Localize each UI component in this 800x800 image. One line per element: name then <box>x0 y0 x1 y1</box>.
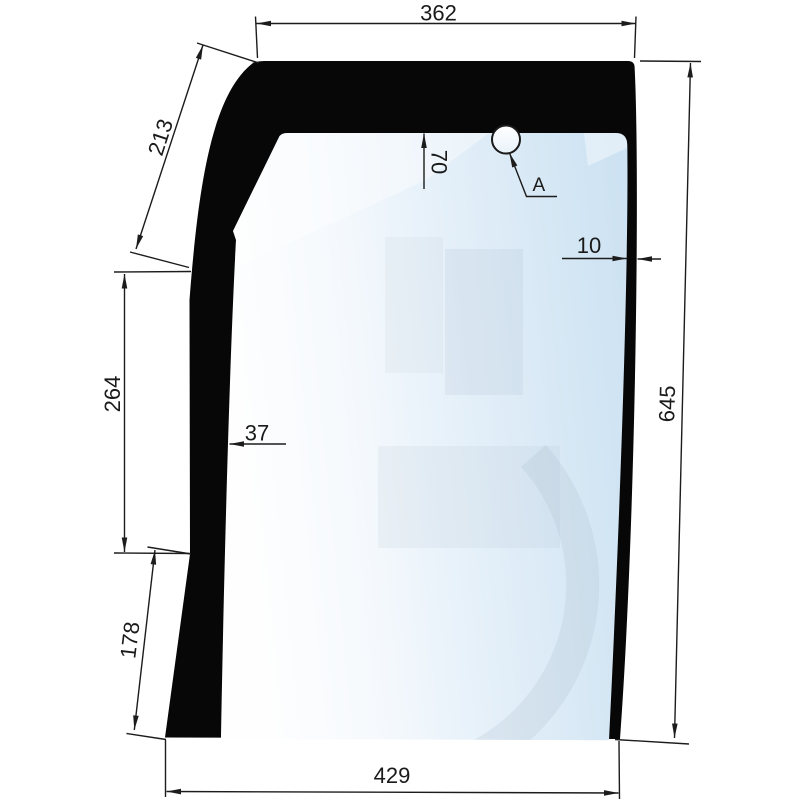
svg-text:37: 37 <box>245 421 269 446</box>
svg-text:213: 213 <box>143 116 178 159</box>
svg-text:362: 362 <box>420 1 457 26</box>
svg-text:429: 429 <box>374 763 411 788</box>
svg-text:10: 10 <box>577 233 601 258</box>
svg-text:264: 264 <box>100 376 125 413</box>
svg-text:70: 70 <box>427 150 452 174</box>
svg-text:A: A <box>533 175 546 196</box>
svg-text:178: 178 <box>115 620 144 659</box>
svg-text:645: 645 <box>654 385 680 422</box>
